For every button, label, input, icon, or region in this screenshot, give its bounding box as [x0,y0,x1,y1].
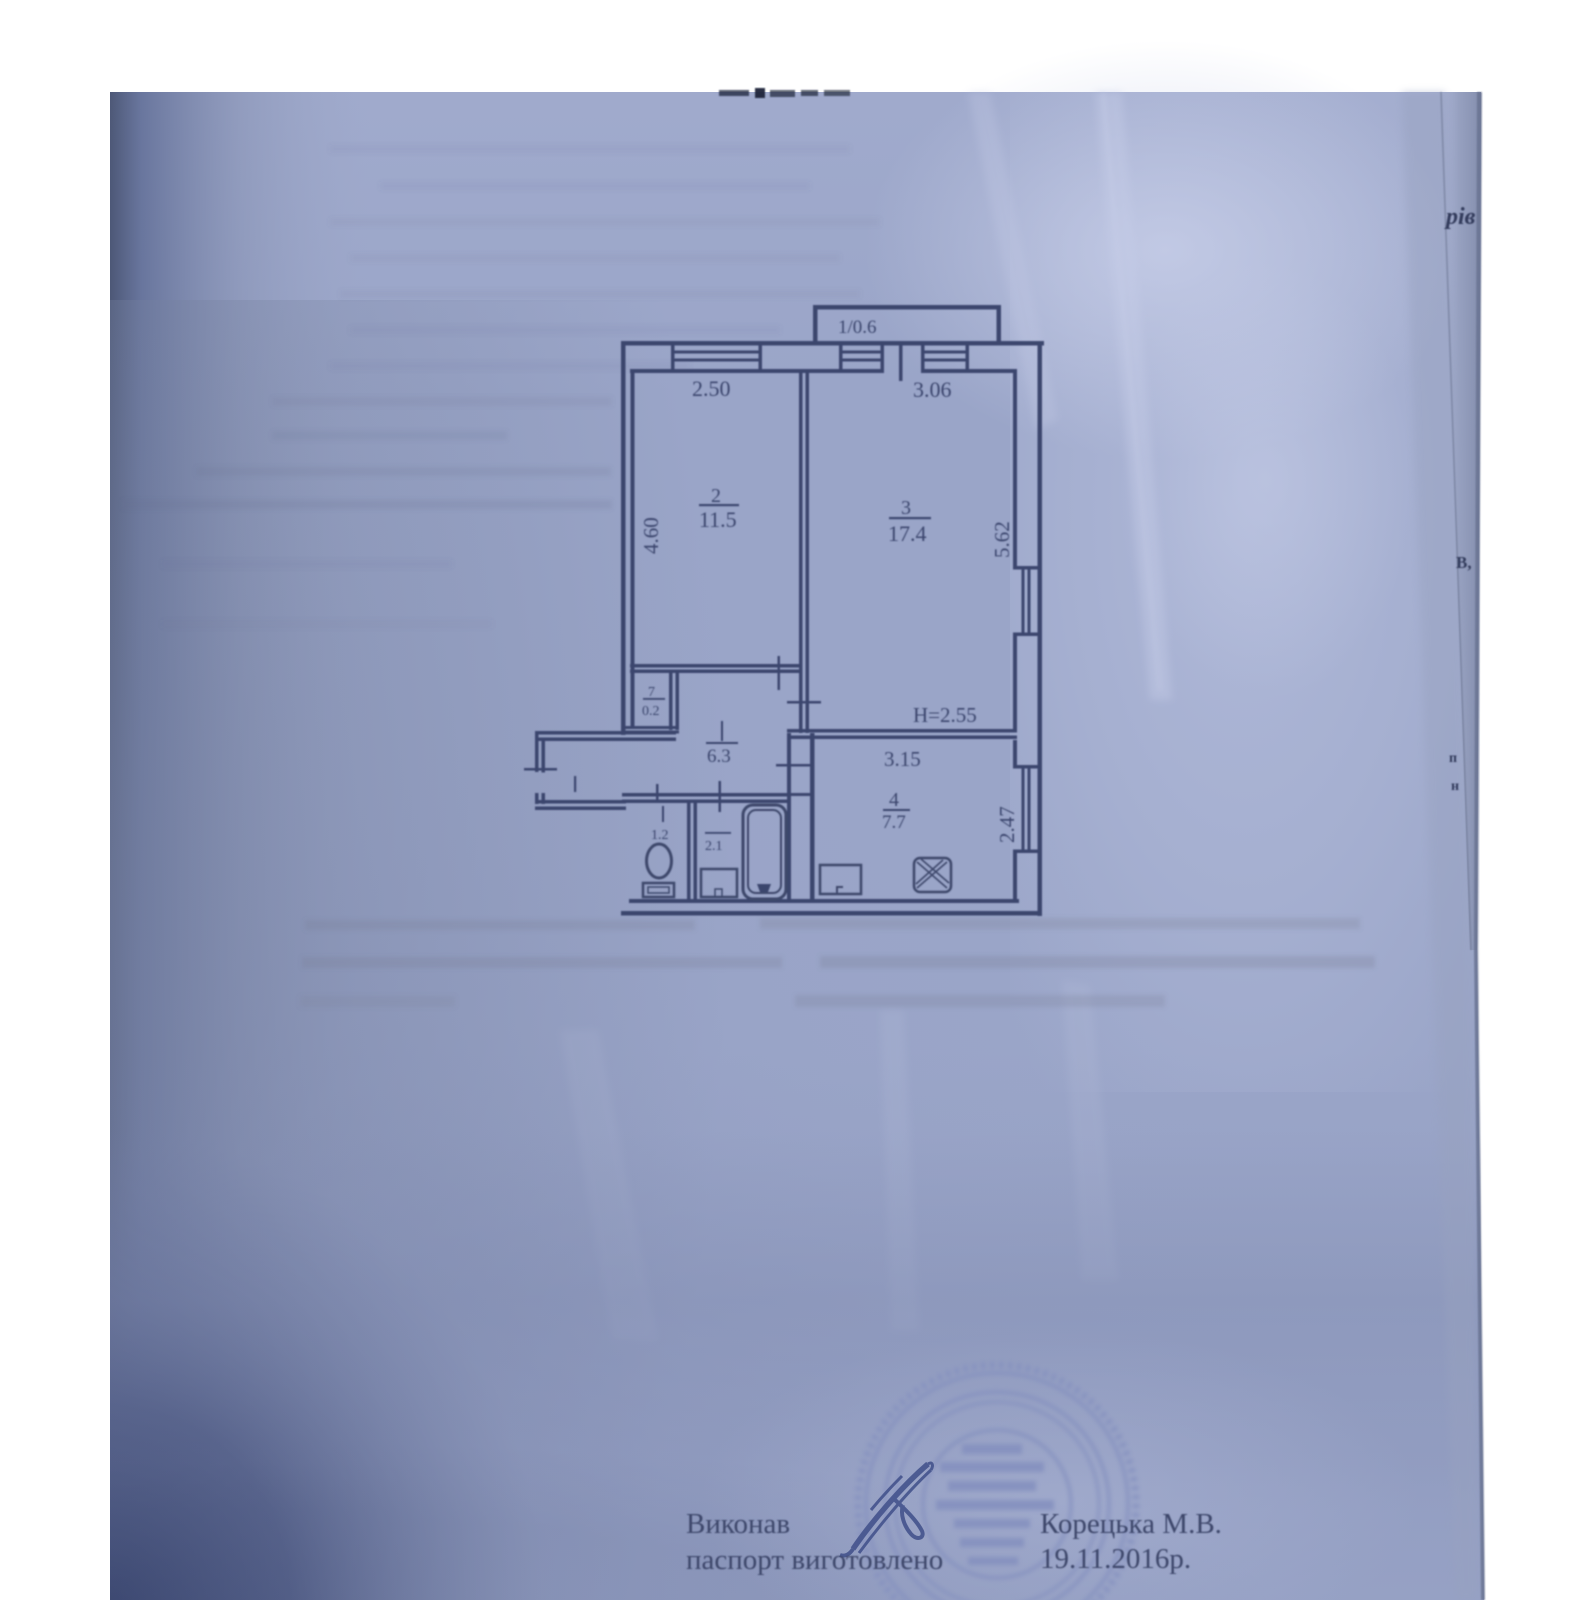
svg-text:17.4: 17.4 [888,521,927,546]
svg-text:3.15: 3.15 [884,747,921,771]
svg-text:4: 4 [889,789,899,811]
svg-text:Н=2.55: Н=2.55 [913,703,977,727]
svg-text:2.1: 2.1 [705,839,723,854]
svg-text:Корецька М.В.: Корецька М.В. [1040,1508,1222,1540]
svg-text:11.5: 11.5 [699,507,737,532]
svg-text:2: 2 [711,485,721,507]
svg-text:н: н [1451,779,1459,794]
svg-text:3.06: 3.06 [913,377,952,402]
svg-text:Виконав: Виконав [686,1508,790,1540]
svg-text:2.50: 2.50 [692,376,731,401]
svg-text:6.3: 6.3 [707,746,731,767]
svg-text:19.11.2016р.: 19.11.2016р. [1040,1543,1191,1575]
svg-text:4.60: 4.60 [639,517,663,554]
svg-text:2.47: 2.47 [995,806,1019,843]
svg-text:паспорт виготовлено: паспорт виготовлено [686,1544,943,1576]
svg-text:7: 7 [648,685,655,700]
svg-text:5.62: 5.62 [990,521,1014,558]
svg-text:1/0.6: 1/0.6 [838,317,877,338]
svg-text:7.7: 7.7 [882,812,906,833]
svg-text:рів: рів [1444,204,1476,230]
svg-text:В,: В, [1456,553,1472,572]
svg-text:0.2: 0.2 [642,704,660,719]
svg-text:1.2: 1.2 [651,828,669,843]
svg-text:п: п [1449,751,1457,766]
svg-text:3: 3 [901,497,911,519]
